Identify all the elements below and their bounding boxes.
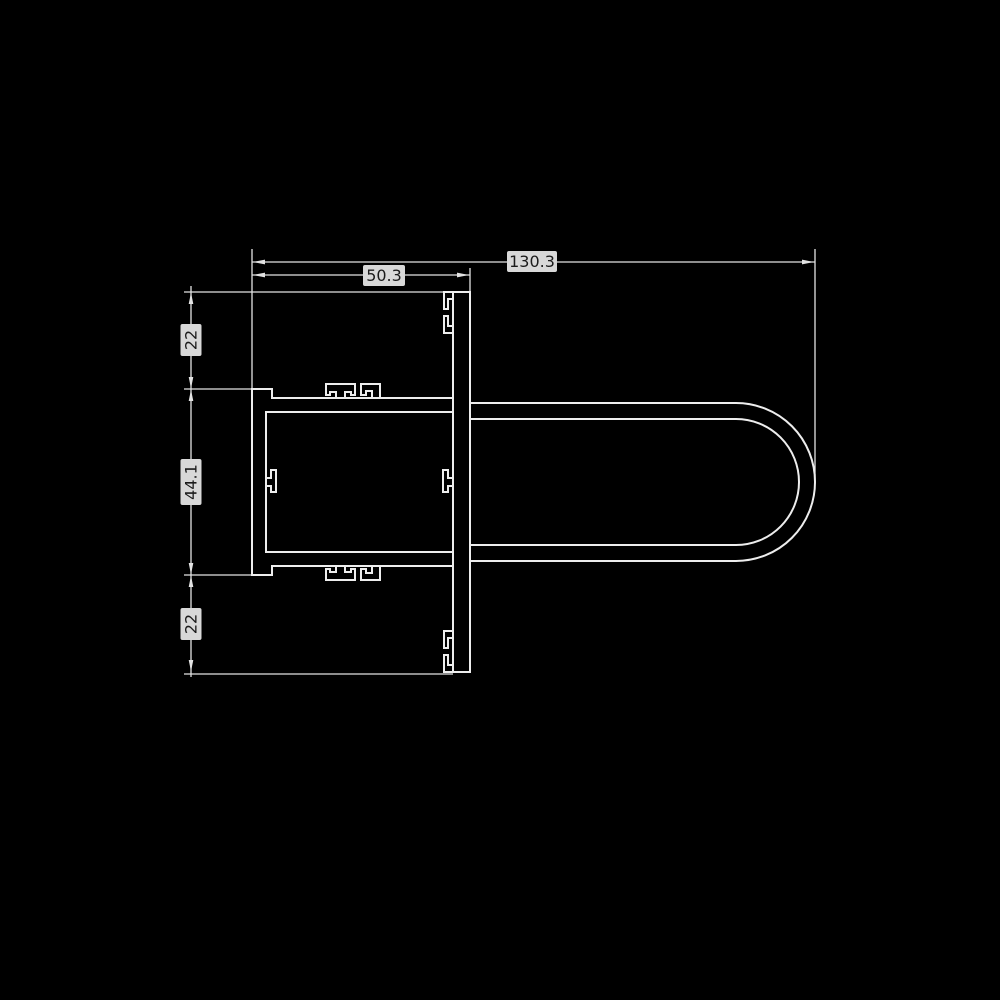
arrowhead-down	[189, 377, 194, 389]
clip-notch-stem-bottom-upper	[444, 631, 453, 648]
arrowhead-right	[457, 273, 469, 278]
dimension-bottom-height: 22	[181, 608, 202, 640]
clip-notch-stem-top-lower	[444, 316, 453, 333]
clip-notch-stem-bottom-lower	[444, 655, 453, 672]
glazing-hook-top-right	[361, 384, 380, 398]
profile-stem	[453, 292, 470, 672]
dimension-left-heights: 22 44.1 22	[181, 286, 202, 677]
profile-capsule-arm	[470, 403, 815, 561]
glazing-hook-bottom-right	[361, 566, 380, 580]
profile-body	[252, 292, 815, 672]
dimension-value-box-width: 50.3	[366, 266, 402, 285]
arrowhead-left	[253, 260, 265, 265]
dimension-middle-height: 44.1	[181, 459, 202, 505]
clip-notch-stem-top-upper	[444, 292, 453, 309]
profile-main-box	[252, 389, 470, 575]
arrowhead-left	[253, 273, 265, 278]
glazing-hook-top-left	[326, 384, 355, 398]
extension-lines	[184, 249, 815, 674]
glazing-hook-bottom-left	[326, 566, 355, 580]
dimension-total-width: 130.3	[252, 251, 815, 272]
profile-cross-section-drawing: 130.3 50.3 22 44.1 22	[0, 0, 1000, 1000]
dimension-value-bottom-height: 22	[182, 614, 201, 634]
wall-boss-right	[443, 470, 453, 492]
arrowhead-right	[802, 260, 814, 265]
arrowhead-up	[189, 576, 194, 588]
dimension-box-width: 50.3	[252, 265, 470, 286]
dimension-top-height: 22	[181, 324, 202, 356]
arrowhead-down	[189, 660, 194, 672]
wall-boss-left	[266, 470, 276, 492]
dimension-value-middle-height: 44.1	[182, 464, 201, 500]
dimension-value-total-width: 130.3	[509, 252, 555, 271]
technical-drawing-stage: 130.3 50.3 22 44.1 22	[0, 0, 1000, 1000]
dimension-value-top-height: 22	[182, 330, 201, 350]
arrowhead-up	[189, 390, 194, 402]
arrowhead-up	[189, 293, 194, 305]
arrowhead-down	[189, 563, 194, 575]
